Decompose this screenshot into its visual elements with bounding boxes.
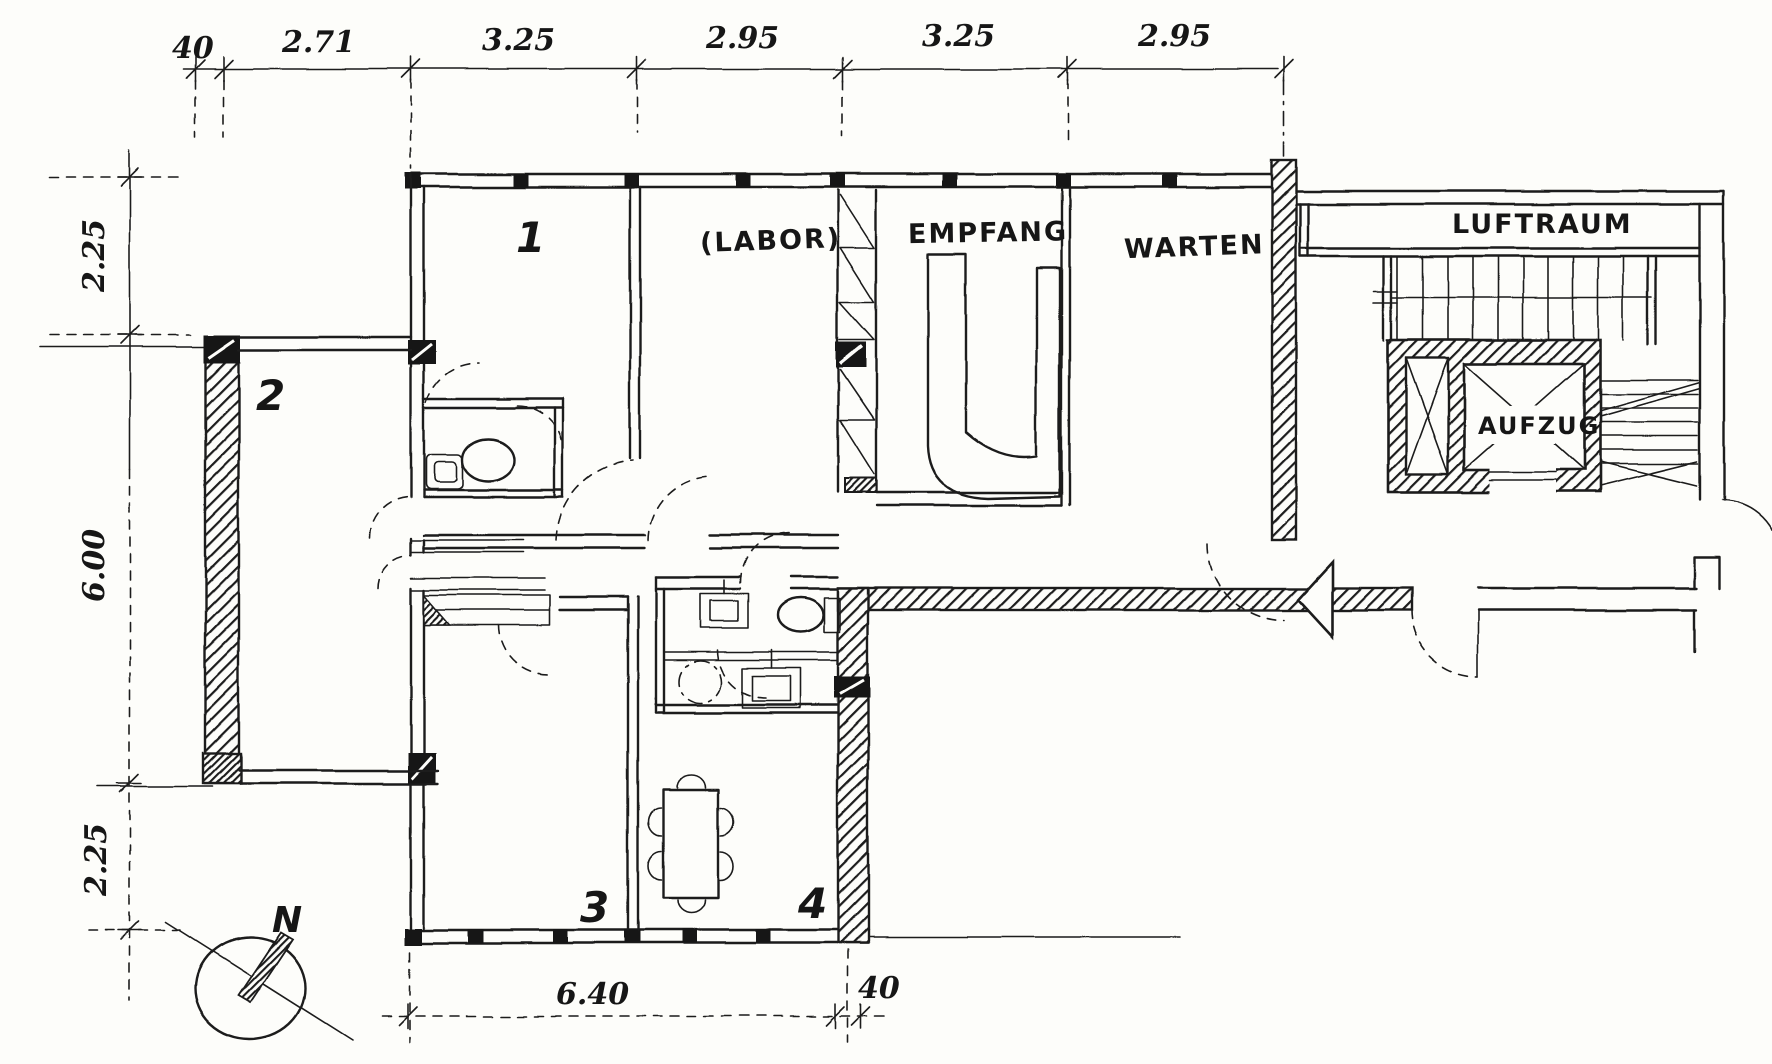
dim-left-0: 2.25 <box>77 219 112 293</box>
floor-plan-drawing: 40 2.71 3.25 2.95 3.25 2.95 2.25 6.00 2.… <box>0 0 1772 1064</box>
room-4-label: 4 <box>797 879 827 928</box>
empfang-label: EMPFANG <box>908 216 1069 250</box>
west-wall-main-block <box>408 174 436 936</box>
dim-top-2: 3.25 <box>482 23 555 58</box>
floor-plan-sheet: 40 2.71 3.25 2.95 3.25 2.95 2.25 6.00 2.… <box>0 0 1772 1064</box>
wall-warten-stairhall <box>1272 160 1296 540</box>
wc-room-center <box>656 533 840 713</box>
meeting-table <box>648 775 733 913</box>
top-dimension-line <box>183 57 1293 168</box>
corridor-east-door-and-wall <box>1412 500 1772 676</box>
corridor-closet <box>424 595 550 675</box>
south-facade-wall <box>405 928 1180 945</box>
warten-label: WARTEN <box>1124 229 1266 265</box>
room-2-label: 2 <box>256 371 285 420</box>
east-exit-door <box>1722 500 1772 557</box>
shelf-cabinet-wall <box>836 190 876 492</box>
dim-bottom-1: 40 <box>858 971 900 1006</box>
sink-icon <box>700 580 748 628</box>
north-facade-wall <box>405 172 1274 189</box>
dim-top-4: 3.25 <box>922 19 995 54</box>
wc-room-west <box>424 363 563 497</box>
room-2-doors <box>370 497 545 590</box>
wall-room3-room4 <box>560 597 638 930</box>
wall-room1-labor <box>556 187 640 540</box>
dim-top-5: 2.95 <box>1137 19 1211 54</box>
dim-left-1: 6.00 <box>77 529 112 602</box>
dim-top-0: 40 <box>172 31 214 66</box>
room-3-label: 3 <box>580 883 609 932</box>
dim-top-1: 2.71 <box>281 25 355 60</box>
corridor-south-hatched-wall <box>834 588 1412 943</box>
dim-top-3: 2.95 <box>705 21 779 56</box>
left-dimension-line <box>40 150 212 1000</box>
toilet-icon <box>426 439 514 489</box>
room-1-label: 1 <box>516 213 545 262</box>
dim-left-2: 2.25 <box>79 823 114 897</box>
entrance-arrow-icon <box>1298 562 1332 636</box>
south-wall-rooms-1-labor <box>424 476 838 548</box>
reception-desk <box>928 255 1060 498</box>
washbasin-icon <box>679 650 800 708</box>
dim-bottom-0: 6.40 <box>556 977 629 1012</box>
aufzug-label: AUFZUG <box>1478 412 1600 440</box>
luftraum-label: LUFTRAUM <box>1452 209 1633 240</box>
toilet-icon <box>777 598 840 632</box>
north-arrow-icon <box>166 922 352 1040</box>
room-2-walls <box>203 335 438 783</box>
labor-label: (LABOR) <box>700 223 842 259</box>
bottom-dimension-line <box>382 950 888 1042</box>
north-label: N <box>272 900 302 941</box>
